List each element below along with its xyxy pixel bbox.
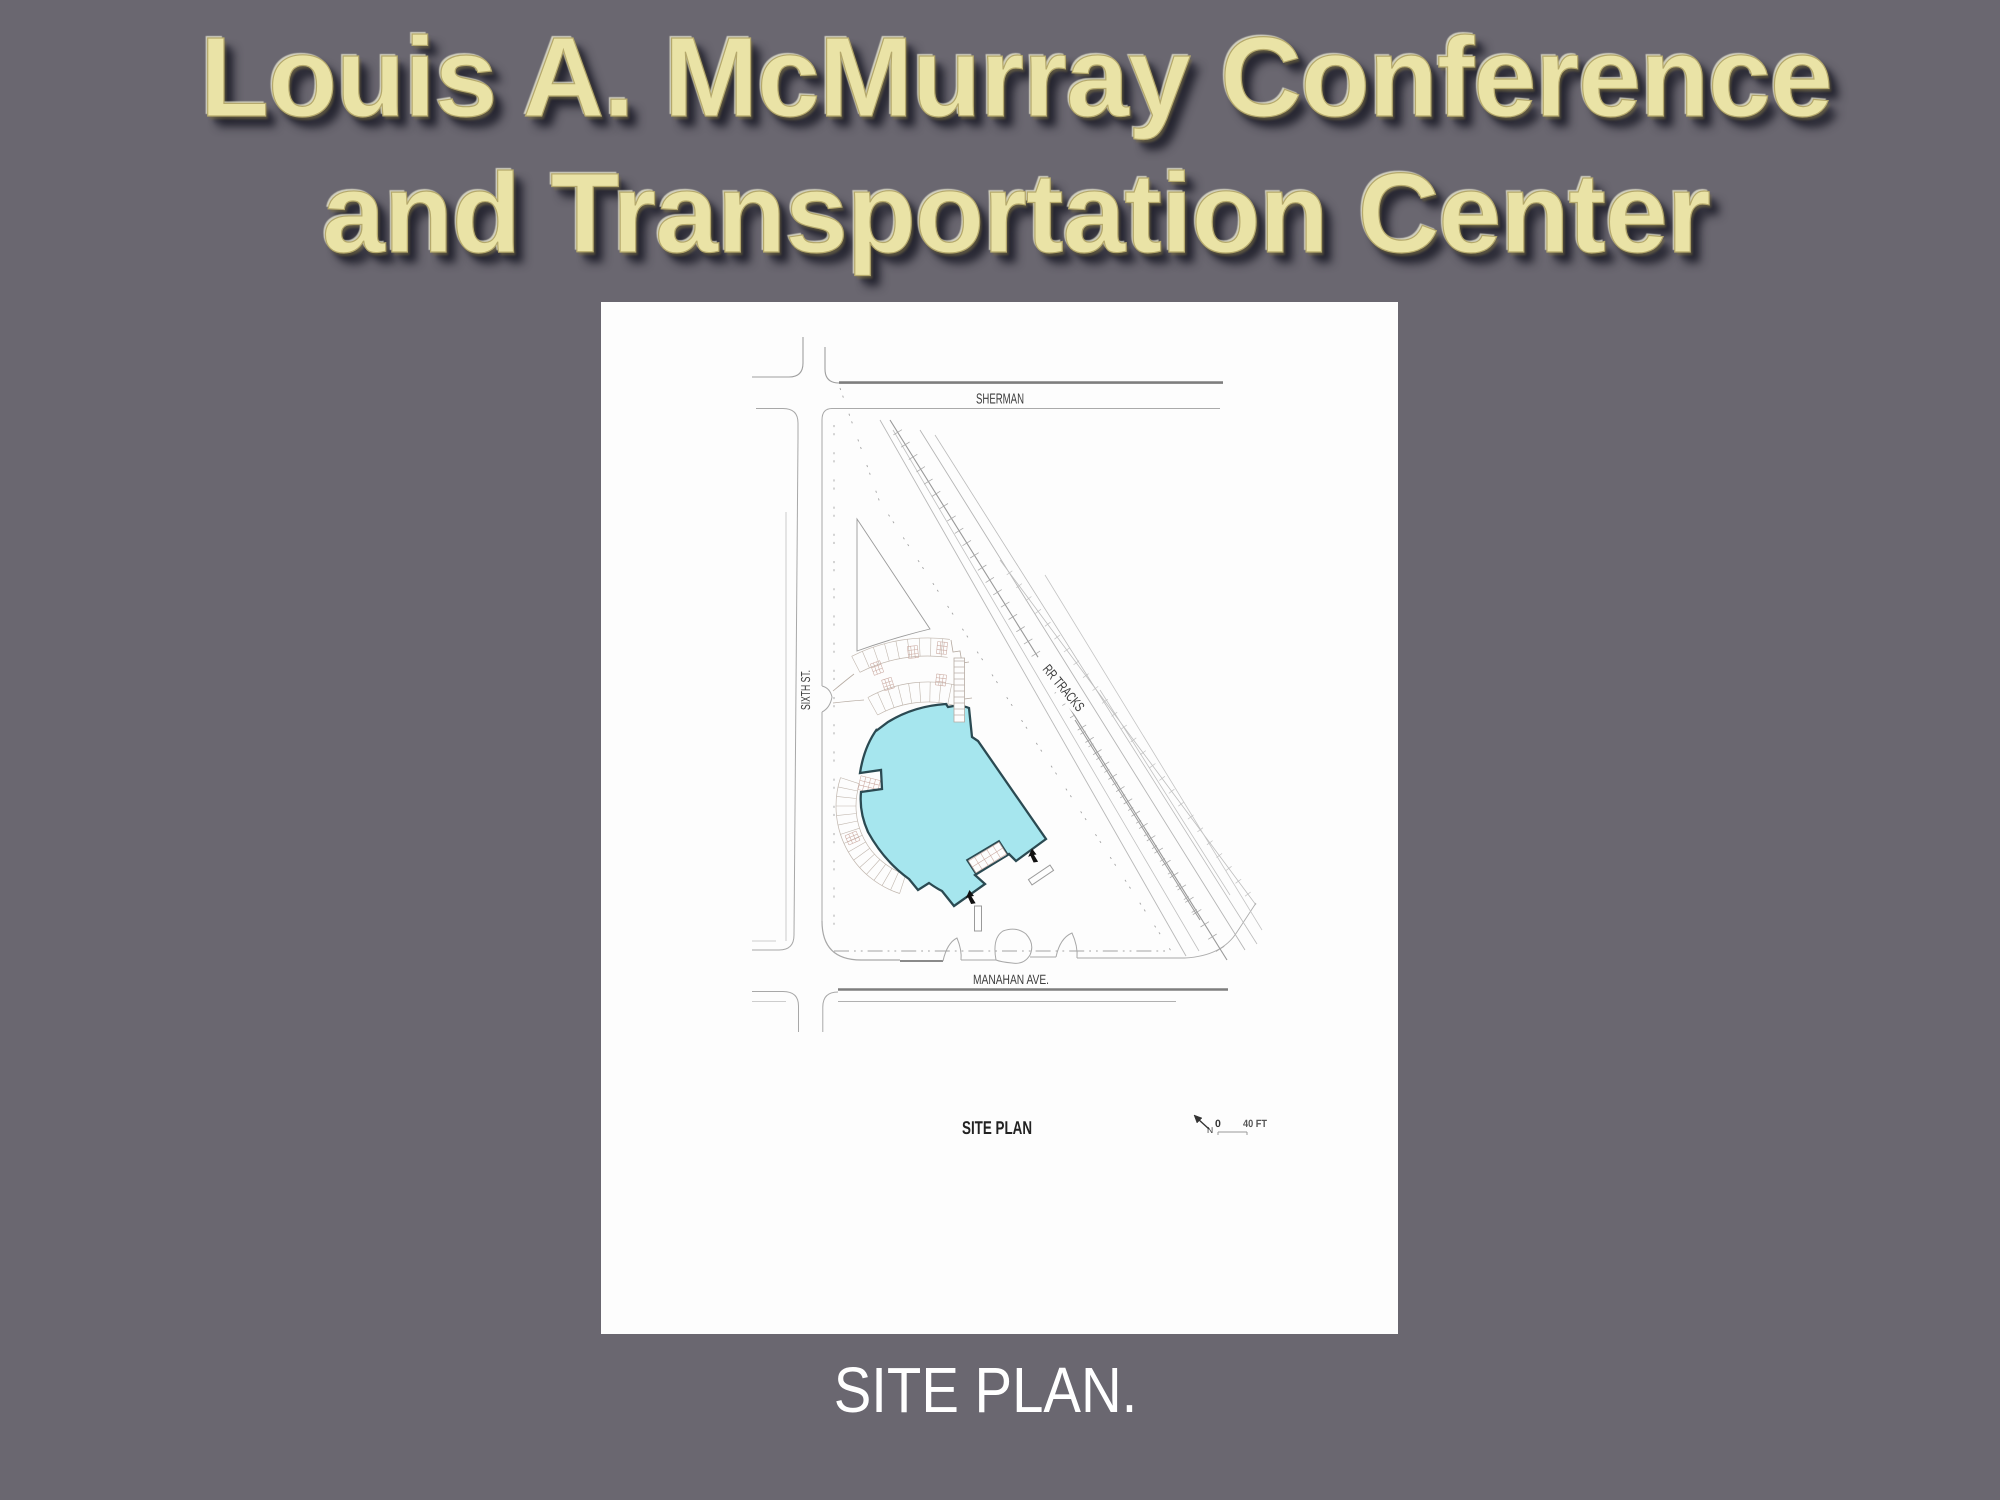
svg-text:SIXTH ST.: SIXTH ST. — [798, 670, 813, 710]
svg-text:MANAHAN AVE.: MANAHAN AVE. — [973, 972, 1049, 987]
svg-text:N: N — [1207, 1125, 1213, 1135]
svg-text:0: 0 — [1215, 1118, 1221, 1130]
svg-text:SHERMAN: SHERMAN — [976, 392, 1024, 408]
svg-text:40 FT: 40 FT — [1243, 1118, 1268, 1130]
svg-text:SITE PLAN: SITE PLAN — [962, 1117, 1032, 1138]
